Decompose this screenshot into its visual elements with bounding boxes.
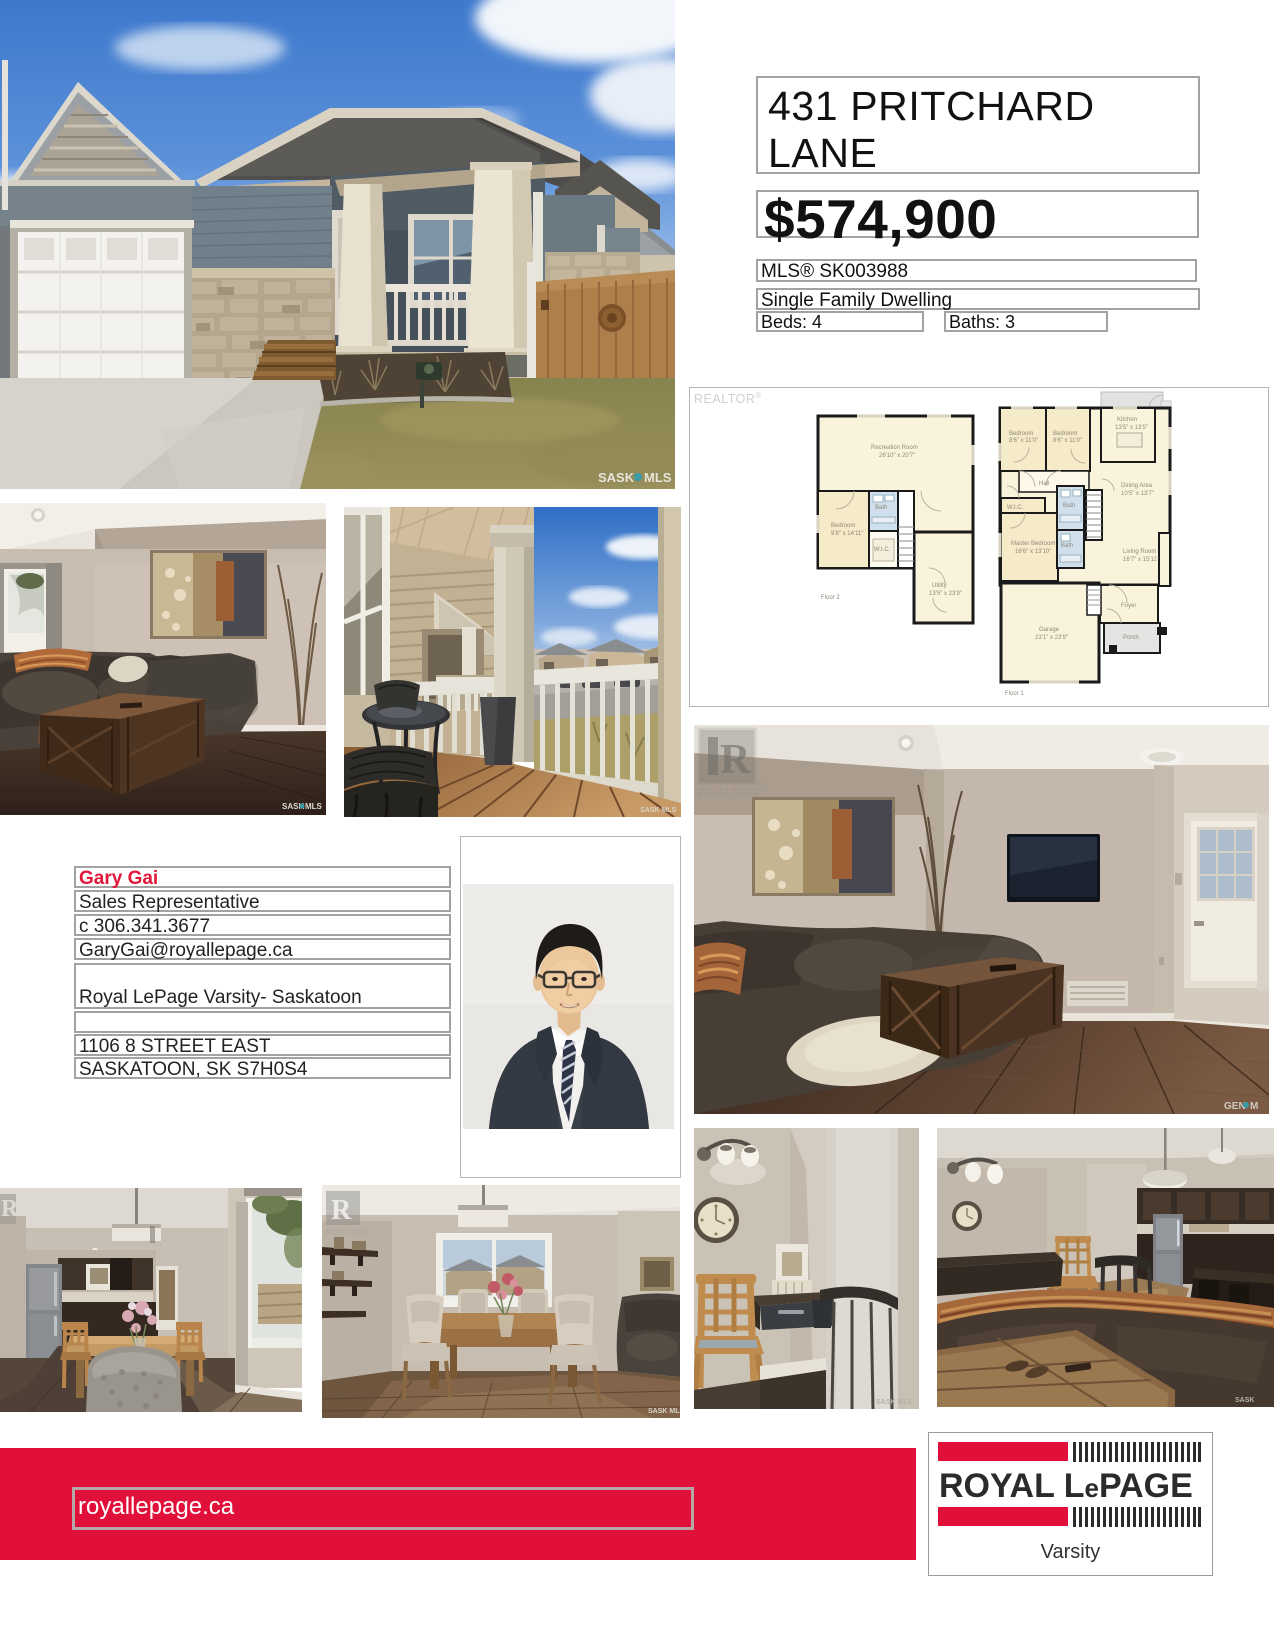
svg-text:Porch: Porch [1123, 635, 1139, 641]
svg-text:Dining Area: Dining Area [1121, 483, 1153, 489]
svg-text:MLS: MLS [644, 470, 672, 485]
svg-text:8'6" x 11'0": 8'6" x 11'0" [1053, 438, 1082, 444]
svg-text:16'6" x 13'10": 16'6" x 13'10" [1015, 549, 1051, 555]
svg-text:R: R [720, 737, 751, 783]
svg-text:23'1" x 23'9": 23'1" x 23'9" [1035, 635, 1068, 641]
svg-text:Bath: Bath [875, 505, 887, 511]
svg-text:MLS: MLS [305, 802, 323, 811]
svg-text:Utility: Utility [932, 583, 947, 589]
svg-text:GEN: GEN [1224, 1101, 1246, 1112]
svg-text:SASK: SASK [1235, 1397, 1254, 1404]
svg-text:Bath: Bath [1063, 503, 1075, 509]
svg-text:®: ® [760, 783, 766, 791]
svg-text:Master Bedroom: Master Bedroom [1011, 541, 1055, 547]
svg-text:13'5" x 23'9": 13'5" x 23'9" [929, 591, 962, 597]
svg-text:8'6" x 11'0": 8'6" x 11'0" [1009, 438, 1038, 444]
svg-text:Bedroom: Bedroom [1009, 431, 1033, 437]
svg-text:Bedroom: Bedroom [831, 523, 855, 529]
svg-text:R: R [1, 1196, 19, 1222]
svg-text:REALTOR: REALTOR [699, 785, 759, 800]
svg-text:Garage: Garage [1039, 627, 1060, 633]
svg-text:W.I.C.: W.I.C. [874, 547, 891, 553]
svg-text:Floor 2: Floor 2 [821, 595, 840, 601]
svg-text:W.I.C.: W.I.C. [1007, 505, 1024, 511]
svg-text:SASK MLS: SASK MLS [876, 1399, 913, 1406]
svg-text:Recreation Room: Recreation Room [871, 445, 918, 451]
svg-text:Kitchen: Kitchen [1117, 417, 1137, 423]
svg-text:SASK MLS: SASK MLS [648, 1408, 680, 1415]
svg-text:SASK: SASK [598, 470, 635, 485]
svg-text:10'5" x 13'7": 10'5" x 13'7" [1121, 491, 1154, 497]
svg-text:R: R [331, 1195, 352, 1226]
svg-text:Floor 1: Floor 1 [1005, 691, 1024, 697]
svg-text:Foyer: Foyer [1121, 603, 1136, 609]
svg-text:Bath: Bath [1061, 543, 1073, 549]
svg-text:REALTOR®: REALTOR® [326, 1228, 369, 1237]
svg-text:Bedroom: Bedroom [1053, 431, 1077, 437]
svg-text:16'7" x 15'11": 16'7" x 15'11" [1123, 557, 1159, 563]
svg-text:9'8" x 14'11": 9'8" x 14'11" [831, 531, 863, 537]
svg-text:26'10" x 20'7": 26'10" x 20'7" [879, 453, 915, 459]
svg-text:M: M [1250, 1101, 1258, 1112]
svg-text:13'5" x 13'5": 13'5" x 13'5" [1115, 425, 1148, 431]
svg-text:Hall: Hall [1039, 481, 1049, 487]
svg-text:Living Room: Living Room [1123, 549, 1156, 555]
svg-text:SASK MLS: SASK MLS [640, 807, 677, 814]
